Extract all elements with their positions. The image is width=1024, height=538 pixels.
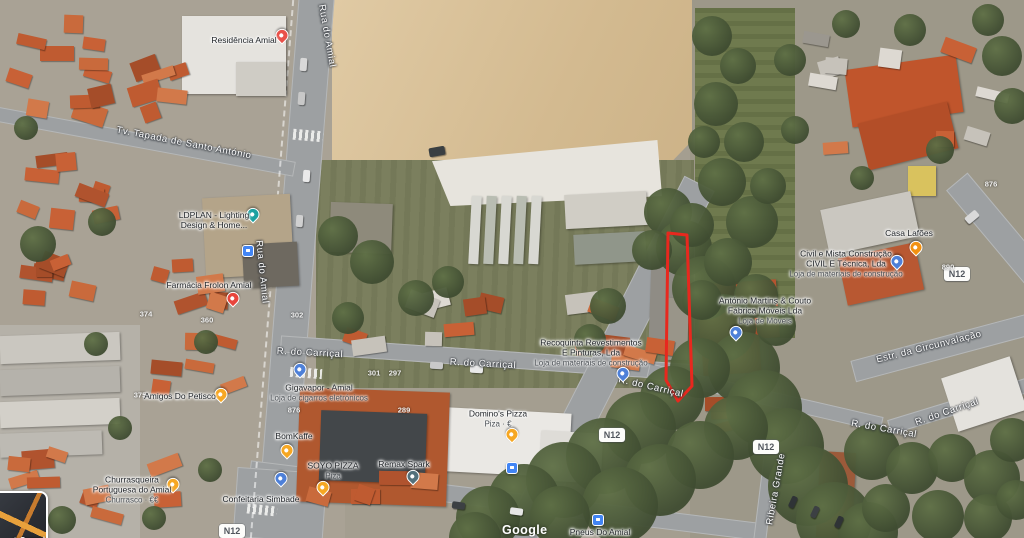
building-roof <box>825 57 849 75</box>
poi-label-amigos-do-petisco[interactable]: Amigos Do Petisco <box>144 392 216 402</box>
poi-label-ldplan-lighting[interactable]: LDPLAN - LightingDesign & Home... <box>179 211 249 231</box>
building-roof <box>878 48 903 70</box>
building-roof <box>26 476 59 488</box>
building-roof <box>8 456 31 472</box>
building <box>0 398 120 428</box>
tree <box>432 266 464 298</box>
poi-name-line: Residência Amial <box>211 36 276 46</box>
tree <box>724 122 764 162</box>
poi-name-line: CIVIL E Técnica, Lda <box>789 259 902 269</box>
tree <box>850 166 874 190</box>
poi-name-line: Fábrica Móveis Lda <box>719 306 811 316</box>
building-roof <box>64 15 84 34</box>
house-number: 289 <box>398 406 411 415</box>
poi-subtitle: Loja de Móveis <box>719 316 811 325</box>
poi-name-line: SOYO PIZZA <box>307 462 358 472</box>
poi-subtitle: Loja de materiais de construção <box>789 269 902 278</box>
tree <box>912 490 964 538</box>
house-number: 876 <box>985 180 998 189</box>
poi-label-residencia-amial[interactable]: Residência Amial <box>211 36 276 46</box>
tree <box>694 82 738 126</box>
poi-label-civil-e-mista-construcao[interactable]: Civil e Mista ConstruçãoCIVIL E Técnica,… <box>789 250 902 279</box>
poi-label-remax-spark[interactable]: Remax Spark <box>378 460 430 470</box>
route-shield-n12: N12 <box>599 428 625 442</box>
poi-name-line: Farmácia Frolon Amial <box>166 281 251 291</box>
tree <box>14 116 38 140</box>
building <box>236 62 286 96</box>
tree <box>670 203 714 247</box>
house-number: 301 <box>368 369 381 378</box>
poi-pin-bus-stop-2[interactable] <box>506 462 518 474</box>
tree <box>781 116 809 144</box>
tree <box>20 226 56 262</box>
tree <box>332 302 364 334</box>
building-roof <box>49 207 75 229</box>
building <box>564 191 648 229</box>
poi-subtitle: Loja de materiais de construção <box>534 358 647 367</box>
house-number: 890 <box>942 263 955 272</box>
tree <box>774 44 806 76</box>
building-roof <box>462 297 486 317</box>
building-roof <box>823 141 849 154</box>
poi-label-pneus-do-amial[interactable]: Pneus Do Amial <box>570 528 630 538</box>
poi-label-antonio-martins-couto[interactable]: António Martins & CoutoFábrica Móveis Ld… <box>719 297 811 326</box>
tree <box>832 10 860 38</box>
poi-name-line: Casa Lafões <box>885 229 933 239</box>
tree <box>688 126 720 158</box>
poi-name-line: Design & Home... <box>179 221 249 231</box>
house-number: 360 <box>201 316 214 325</box>
building-roof <box>22 289 45 306</box>
tree <box>926 136 954 164</box>
tree <box>862 484 910 532</box>
tree <box>682 280 722 320</box>
building-roof <box>424 332 442 346</box>
poi-label-recoquinta-revestimentos[interactable]: Recoquinta RevestimentosE Pinturas, LdaL… <box>534 339 647 368</box>
poi-name-line: Pneus Do Amial <box>570 528 630 538</box>
tree <box>108 416 132 440</box>
tree <box>142 506 166 530</box>
poi-name-line: Confeitaria Simbade <box>222 495 299 505</box>
tree <box>398 280 434 316</box>
route-shield-n12: N12 <box>753 440 779 454</box>
poi-pin-pneus-do-amial[interactable] <box>592 514 604 526</box>
car <box>430 362 443 370</box>
poi-name-line: Domino's Pizza <box>469 410 527 420</box>
poi-label-gigavapor-amial[interactable]: Gigavapor - AmialLoja de cigarros eletró… <box>270 384 368 403</box>
tree <box>84 332 108 356</box>
tree <box>198 458 222 482</box>
tree <box>350 240 394 284</box>
poi-subtitle: Piza <box>307 471 358 480</box>
tree <box>590 288 626 324</box>
building-roof <box>443 322 474 338</box>
car <box>298 92 306 105</box>
route-shield-n12: N12 <box>219 524 245 538</box>
house-number: 876 <box>288 406 301 415</box>
car <box>296 215 304 227</box>
satellite-map-view[interactable]: Rua do AmialRua do AmialTv. Tapada de Sa… <box>0 0 1024 538</box>
house-number: 297 <box>389 369 402 378</box>
google-watermark: Google <box>502 523 547 537</box>
building-roof <box>82 36 105 51</box>
building-roof <box>40 46 74 62</box>
poi-label-bomkaffe[interactable]: BomKaffe <box>275 432 312 442</box>
tree <box>88 208 116 236</box>
tree <box>48 506 76 534</box>
tree <box>720 48 756 84</box>
poi-name-line: E Pinturas, Lda <box>534 348 647 358</box>
poi-name-line: Remax Spark <box>378 460 430 470</box>
layers-control[interactable]: ❖Camadas <box>0 491 48 538</box>
building <box>908 166 936 196</box>
poi-label-casa-lafoes[interactable]: Casa Lafões <box>885 229 933 239</box>
building-roof <box>56 152 77 171</box>
building-roof <box>79 58 108 70</box>
car <box>303 170 311 182</box>
tree <box>750 168 786 204</box>
building-roof <box>26 98 50 118</box>
layers-thumbnail <box>0 493 46 538</box>
poi-name-line: Gigavapor - Amial <box>270 384 368 394</box>
poi-label-confeitaria-simbade[interactable]: Confeitaria Simbade <box>222 495 299 505</box>
tree <box>692 16 732 56</box>
poi-pin-bus-stop-1[interactable] <box>242 245 254 257</box>
poi-name-line: Portuguesa do Amial <box>93 485 171 495</box>
tree <box>972 4 1004 36</box>
poi-subtitle: Churrasco · €€ <box>93 495 171 504</box>
building-roof <box>171 258 193 272</box>
building-roof <box>150 359 182 376</box>
tree <box>194 330 218 354</box>
building <box>0 366 120 396</box>
tree <box>982 36 1022 76</box>
poi-label-farmacia-frolon-amial[interactable]: Farmácia Frolon Amial <box>166 281 251 291</box>
house-number: 374 <box>140 310 153 319</box>
tree <box>894 14 926 46</box>
car <box>300 58 308 71</box>
poi-name-line: Amigos Do Petisco <box>144 392 216 402</box>
tree <box>632 230 672 270</box>
poi-label-dominos-pizza[interactable]: Domino's PizzaPiza · € <box>469 410 527 429</box>
poi-subtitle: Piza · € <box>469 419 527 428</box>
poi-name-line: BomKaffe <box>275 432 312 442</box>
poi-subtitle: Loja de cigarros eletrónicos <box>270 393 368 402</box>
house-number: 302 <box>291 311 304 320</box>
poi-label-churrasqueira-portuguesa-do-amial[interactable]: ChurrasqueiraPortuguesa do AmialChurrasc… <box>93 476 171 505</box>
tree <box>994 88 1024 124</box>
poi-label-soyo-pizza[interactable]: SOYO PIZZAPiza <box>307 462 358 481</box>
